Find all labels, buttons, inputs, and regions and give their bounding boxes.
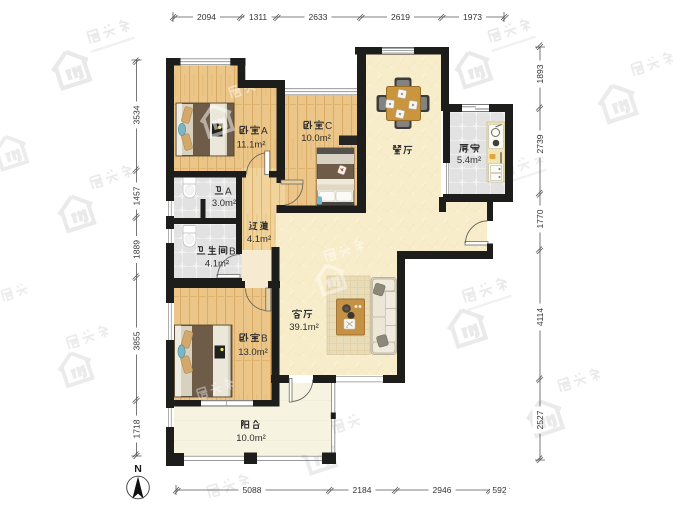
svg-text:5.4m²: 5.4m² — [457, 155, 481, 166]
svg-text:1311: 1311 — [249, 12, 268, 22]
svg-text:3855: 3855 — [132, 331, 142, 350]
svg-text:1718: 1718 — [132, 419, 142, 438]
svg-text:39.1m²: 39.1m² — [289, 322, 319, 333]
svg-text:A: A — [261, 126, 268, 137]
svg-text:2619: 2619 — [391, 12, 410, 22]
svg-text:B: B — [261, 334, 268, 345]
svg-text:2527: 2527 — [535, 410, 545, 429]
svg-text:1770: 1770 — [535, 209, 545, 228]
svg-text:10.0m²: 10.0m² — [301, 133, 331, 144]
svg-text:4.1m²: 4.1m² — [247, 234, 271, 245]
svg-text:2739: 2739 — [535, 134, 545, 153]
svg-text:13.0m²: 13.0m² — [238, 347, 268, 358]
svg-text:1889: 1889 — [132, 240, 142, 259]
svg-text:3534: 3534 — [132, 105, 142, 124]
svg-text:4.1m²: 4.1m² — [205, 259, 229, 270]
svg-text:A: A — [225, 187, 232, 198]
svg-text:1893: 1893 — [535, 64, 545, 83]
svg-text:1457: 1457 — [132, 186, 142, 205]
svg-text:2184: 2184 — [353, 485, 372, 495]
svg-text:C: C — [325, 121, 332, 132]
svg-text:5088: 5088 — [243, 485, 262, 495]
svg-text:N: N — [134, 463, 142, 475]
svg-text:4114: 4114 — [535, 308, 545, 327]
svg-text:11.1m²: 11.1m² — [237, 140, 266, 151]
svg-text:2094: 2094 — [197, 12, 216, 22]
svg-text:B: B — [229, 247, 236, 258]
svg-text:3.0m²: 3.0m² — [212, 198, 236, 209]
svg-text:2946: 2946 — [433, 485, 452, 495]
svg-text:10.0m²: 10.0m² — [236, 433, 266, 444]
svg-text:592: 592 — [492, 485, 506, 495]
svg-text:1973: 1973 — [463, 12, 482, 22]
svg-text:2633: 2633 — [309, 12, 328, 22]
